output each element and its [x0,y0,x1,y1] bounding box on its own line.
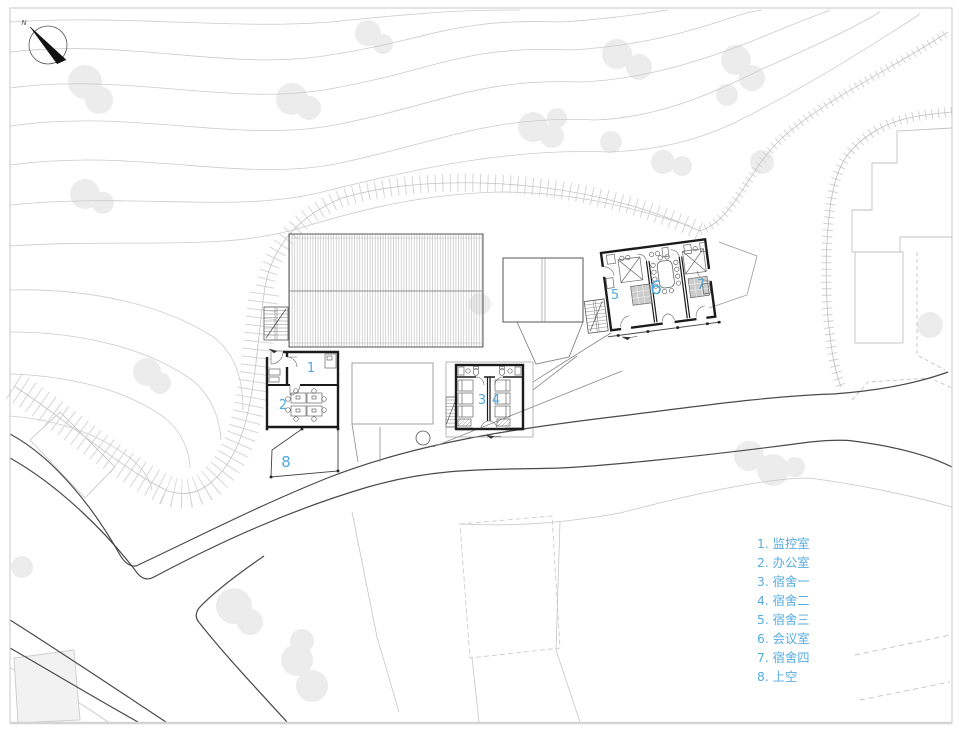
north-needle [30,27,66,64]
legend-item-1: 1. 监控室 [757,536,810,551]
room-label-7: 7 [697,278,705,293]
room-label-5: 5 [611,288,619,303]
north-arrow: N [21,19,67,64]
roads [10,372,952,722]
room-label-1: 1 [307,361,315,376]
planter-circle [416,431,430,445]
room-label-2: 2 [279,398,287,413]
stair-c [584,299,608,333]
entry-mark-c [622,335,637,340]
room-label-3: 3 [478,393,486,408]
entry-mark-b [486,435,501,439]
void-8-terrace [266,428,340,479]
north-label: N [21,19,27,27]
legend-item-5: 5. 宿舍三 [757,612,810,627]
room-label-4: 4 [492,393,500,408]
legend-item-4: 4. 宿舍二 [757,593,810,608]
property-lines [10,478,952,722]
pad-mid-left [30,412,115,498]
legend-item-2: 2. 办公室 [757,555,810,570]
legend: 1. 监控室 2. 办公室 3. 宿舍一 4. 宿舍二 5. 宿舍三 6. 会议… [757,536,810,684]
ramp [517,322,583,364]
legend-item-6: 6. 会议室 [757,631,810,646]
building-roof [289,234,483,347]
room-label-6: 6 [650,277,662,299]
legend-item-8: 8. 上空 [757,670,797,684]
boundary-line [826,112,952,387]
stair-b [446,397,456,427]
site-plan-drawing: 1 2 3 4 5 6 7 8 1. 监控室 2. 办公室 3. 宿舍一 4. … [0,0,960,734]
legend-item-3: 3. 宿舍一 [757,574,810,589]
pad-lower-left [14,650,80,723]
building-a [266,349,340,478]
room-label-8: 8 [281,453,291,471]
building-b [446,362,533,439]
neighbor-buildings [852,128,952,700]
site-plan-page: 1 2 3 4 5 6 7 8 1. 监控室 2. 办公室 3. 宿舍一 4. … [0,0,960,734]
legend-item-7: 7. 宿舍四 [757,650,810,665]
road-branch [196,556,287,722]
terrace-rect [352,363,433,424]
building-b-fixtures [458,367,521,376]
roof-structure [503,258,583,364]
